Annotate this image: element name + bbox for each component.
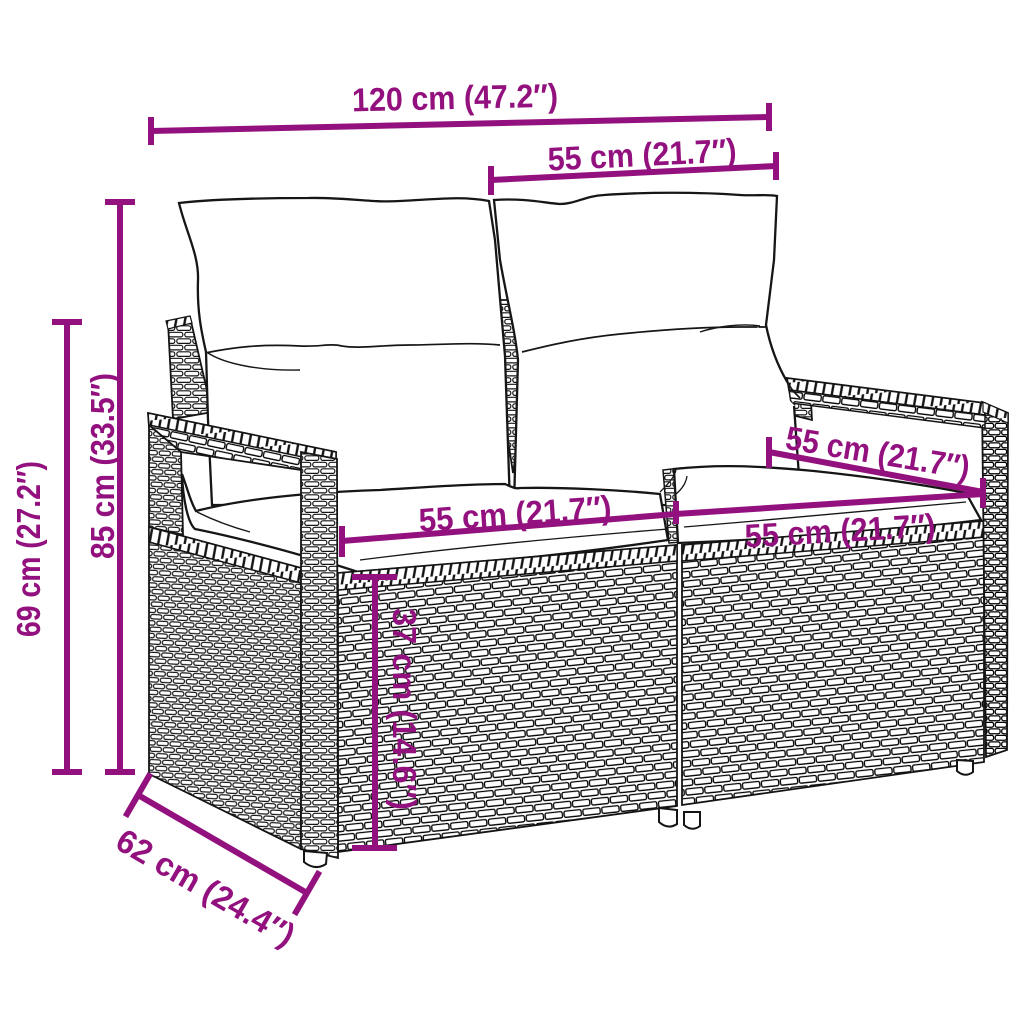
svg-text:69 cm (27.2″): 69 cm (27.2″) [10, 461, 47, 637]
svg-text:120 cm (47.2″): 120 cm (47.2″) [352, 77, 559, 119]
svg-text:37 cm (14.6″): 37 cm (14.6″) [386, 608, 423, 810]
svg-text:85 cm (33.5″): 85 cm (33.5″) [84, 373, 121, 559]
